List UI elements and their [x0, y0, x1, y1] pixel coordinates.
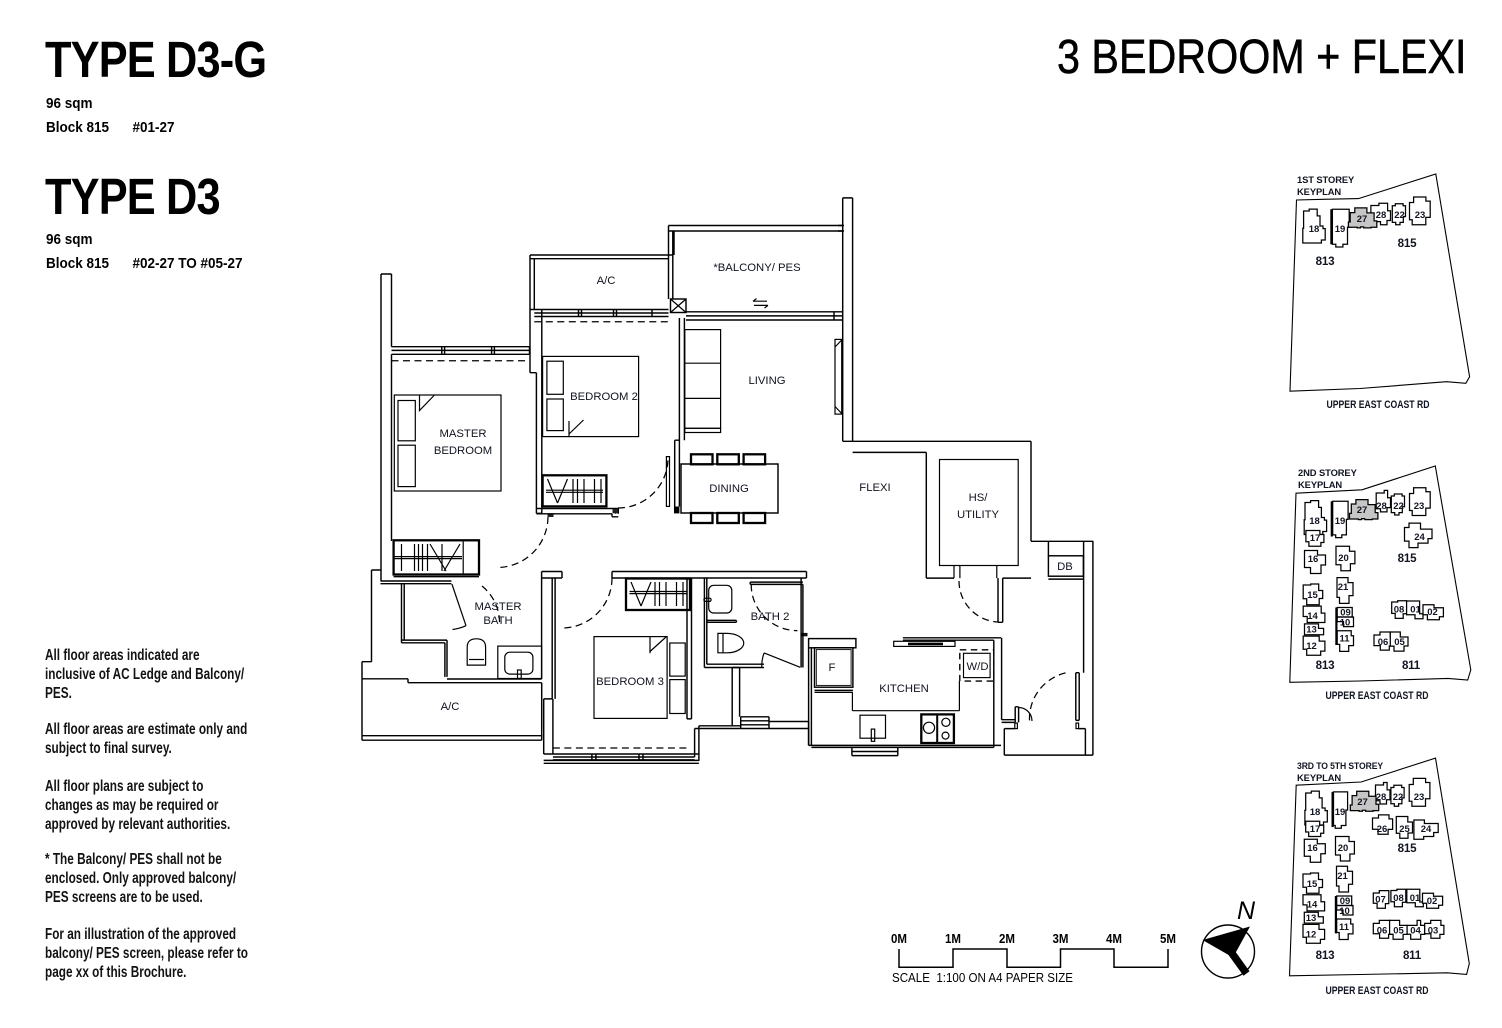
svg-text:22: 22 — [1394, 210, 1405, 221]
svg-text:06: 06 — [1377, 926, 1388, 937]
svg-text:1M: 1M — [945, 931, 961, 946]
svg-text:BEDROOM 2: BEDROOM 2 — [570, 391, 638, 403]
svg-text:UPPER EAST COAST RD: UPPER EAST COAST RD — [1326, 690, 1429, 702]
svg-text:15: 15 — [1307, 879, 1318, 890]
svg-text:27: 27 — [1357, 214, 1368, 225]
svg-text:14: 14 — [1307, 900, 1318, 911]
svg-text:10: 10 — [1340, 618, 1351, 629]
svg-text:18: 18 — [1310, 807, 1321, 818]
svg-text:21: 21 — [1338, 582, 1349, 593]
svg-text:16: 16 — [1307, 843, 1318, 854]
svg-text:28: 28 — [1376, 792, 1387, 803]
svg-text:02: 02 — [1427, 896, 1438, 907]
svg-text:MASTER: MASTER — [474, 601, 521, 613]
svg-text:1ST STOREY: 1ST STOREY — [1297, 174, 1355, 185]
svg-text:02: 02 — [1427, 607, 1438, 618]
svg-text:18: 18 — [1309, 224, 1320, 235]
svg-text:13: 13 — [1306, 913, 1317, 924]
svg-text:08: 08 — [1393, 893, 1404, 904]
svg-text:28: 28 — [1376, 210, 1387, 221]
svg-text:19: 19 — [1335, 516, 1346, 527]
svg-text:21: 21 — [1337, 871, 1348, 882]
svg-text:811: 811 — [1403, 949, 1422, 962]
svg-text:BEDROOM 3: BEDROOM 3 — [596, 676, 664, 688]
svg-text:04: 04 — [1410, 926, 1421, 937]
svg-text:813: 813 — [1316, 949, 1335, 962]
svg-text:N: N — [1237, 897, 1256, 925]
svg-text:05: 05 — [1394, 637, 1405, 648]
svg-text:KITCHEN: KITCHEN — [879, 683, 929, 695]
svg-text:01: 01 — [1410, 605, 1421, 616]
svg-text:27: 27 — [1357, 797, 1368, 808]
svg-text:A/C: A/C — [597, 275, 616, 287]
svg-text:813: 813 — [1316, 255, 1335, 268]
svg-text:*BALCONY/ PES: *BALCONY/ PES — [713, 262, 801, 274]
svg-text:28: 28 — [1376, 501, 1387, 512]
svg-text:BATH: BATH — [483, 615, 512, 627]
svg-text:HS/: HS/ — [969, 492, 989, 504]
svg-text:5M: 5M — [1160, 931, 1176, 946]
svg-text:24: 24 — [1414, 532, 1425, 543]
svg-text:15: 15 — [1307, 590, 1318, 601]
svg-text:UPPER EAST COAST RD: UPPER EAST COAST RD — [1326, 985, 1429, 997]
svg-text:3M: 3M — [1053, 931, 1069, 946]
svg-text:22: 22 — [1393, 792, 1404, 803]
svg-text:16: 16 — [1308, 554, 1319, 565]
svg-text:4M: 4M — [1106, 931, 1122, 946]
svg-text:01: 01 — [1410, 893, 1421, 904]
svg-text:F: F — [829, 662, 836, 674]
svg-text:811: 811 — [1402, 659, 1421, 672]
svg-text:14: 14 — [1307, 611, 1318, 622]
svg-text:FLEXI: FLEXI — [859, 482, 890, 494]
svg-text:LIVING: LIVING — [748, 375, 785, 387]
svg-text:SCALE 1:100 ON A4 PAPER SIZE: SCALE 1:100 ON A4 PAPER SIZE — [892, 970, 1073, 985]
svg-text:07: 07 — [1375, 895, 1386, 906]
svg-text:27: 27 — [1357, 505, 1368, 516]
svg-text:19: 19 — [1335, 807, 1346, 818]
svg-text:UTILITY: UTILITY — [957, 509, 1000, 521]
svg-text:10: 10 — [1339, 906, 1350, 917]
svg-text:BEDROOM: BEDROOM — [434, 445, 492, 457]
svg-text:KEYPLAN: KEYPLAN — [1298, 479, 1342, 490]
svg-text:815: 815 — [1398, 237, 1417, 250]
svg-text:13: 13 — [1306, 625, 1317, 636]
svg-text:18: 18 — [1309, 516, 1320, 527]
svg-text:19: 19 — [1335, 224, 1346, 235]
svg-text:A/C: A/C — [441, 701, 460, 713]
svg-text:3RD TO 5TH STOREY: 3RD TO 5TH STOREY — [1297, 760, 1384, 771]
svg-text:22: 22 — [1393, 501, 1404, 512]
svg-text:BATH 2: BATH 2 — [751, 611, 790, 623]
svg-text:813: 813 — [1316, 659, 1335, 672]
svg-text:11: 11 — [1339, 922, 1350, 933]
svg-text:23: 23 — [1414, 792, 1425, 803]
svg-text:DB: DB — [1057, 561, 1073, 573]
svg-text:17: 17 — [1310, 533, 1321, 544]
svg-text:0M: 0M — [891, 931, 907, 946]
svg-text:12: 12 — [1306, 930, 1317, 941]
svg-text:17: 17 — [1310, 824, 1321, 835]
svg-text:20: 20 — [1338, 553, 1349, 564]
svg-text:23: 23 — [1414, 501, 1425, 512]
svg-text:UPPER EAST COAST RD: UPPER EAST COAST RD — [1327, 399, 1430, 411]
svg-text:11: 11 — [1339, 634, 1350, 645]
svg-text:25: 25 — [1399, 824, 1410, 835]
svg-text:12: 12 — [1306, 641, 1317, 652]
svg-text:815: 815 — [1398, 552, 1417, 565]
svg-text:2M: 2M — [999, 931, 1015, 946]
svg-text:KEYPLAN: KEYPLAN — [1297, 186, 1341, 197]
svg-text:08: 08 — [1394, 605, 1405, 616]
svg-text:MASTER: MASTER — [439, 428, 486, 440]
svg-text:20: 20 — [1338, 843, 1349, 854]
svg-text:2ND STOREY: 2ND STOREY — [1298, 467, 1358, 478]
svg-text:24: 24 — [1421, 824, 1432, 835]
svg-text:KEYPLAN: KEYPLAN — [1297, 772, 1341, 783]
svg-text:815: 815 — [1398, 842, 1417, 855]
svg-text:05: 05 — [1393, 926, 1404, 937]
svg-text:DINING: DINING — [709, 483, 749, 495]
svg-text:03: 03 — [1428, 926, 1439, 937]
svg-text:26: 26 — [1377, 824, 1388, 835]
svg-text:23: 23 — [1415, 210, 1426, 221]
svg-text:W/D: W/D — [967, 661, 989, 673]
svg-text:06: 06 — [1378, 637, 1389, 648]
